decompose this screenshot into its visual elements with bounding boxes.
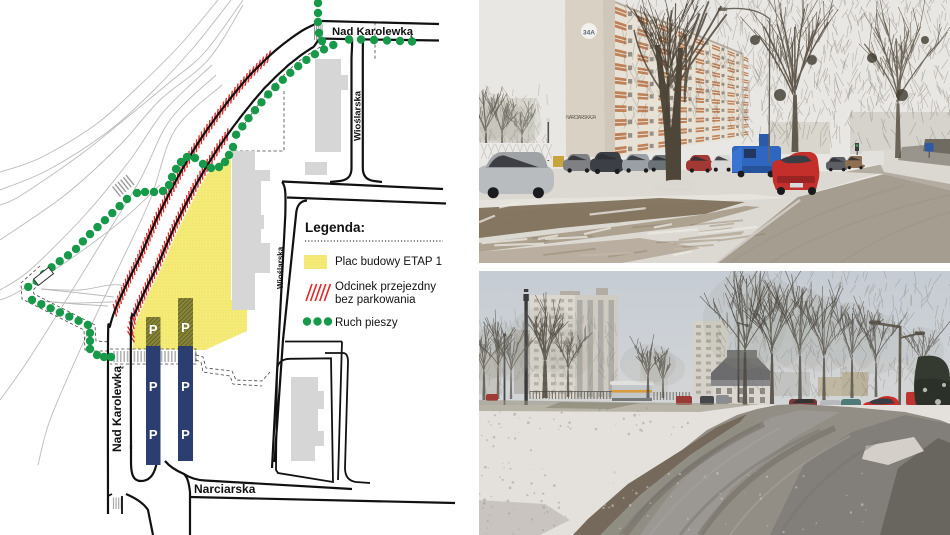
svg-text:Nad Karolewką: Nad Karolewką — [110, 366, 124, 452]
svg-text:bez parkowania: bez parkowania — [335, 294, 416, 306]
svg-text:Narciarska: Narciarska — [194, 482, 256, 496]
svg-text:P: P — [149, 379, 158, 394]
svg-text:Plac budowy ETAP 1: Plac budowy ETAP 1 — [335, 256, 442, 268]
svg-text:P: P — [181, 427, 190, 442]
svg-text:P: P — [149, 427, 158, 442]
svg-text:NARCIARSKA 24: NARCIARSKA 24 — [566, 115, 596, 121]
svg-text:Odcinek przejezdny: Odcinek przejezdny — [335, 281, 436, 293]
svg-text:P: P — [181, 320, 190, 335]
svg-text:Wioślarska: Wioślarska — [353, 90, 364, 141]
svg-text:34A: 34A — [583, 30, 595, 37]
svg-text:Nad Karolewką: Nad Karolewką — [332, 26, 414, 38]
svg-text:P: P — [149, 322, 158, 337]
svg-text:Legenda:: Legenda: — [305, 220, 365, 235]
svg-text:Wioślarska: Wioślarska — [276, 246, 285, 289]
svg-text:P: P — [181, 379, 190, 394]
svg-text:Ruch pieszy: Ruch pieszy — [335, 317, 398, 329]
